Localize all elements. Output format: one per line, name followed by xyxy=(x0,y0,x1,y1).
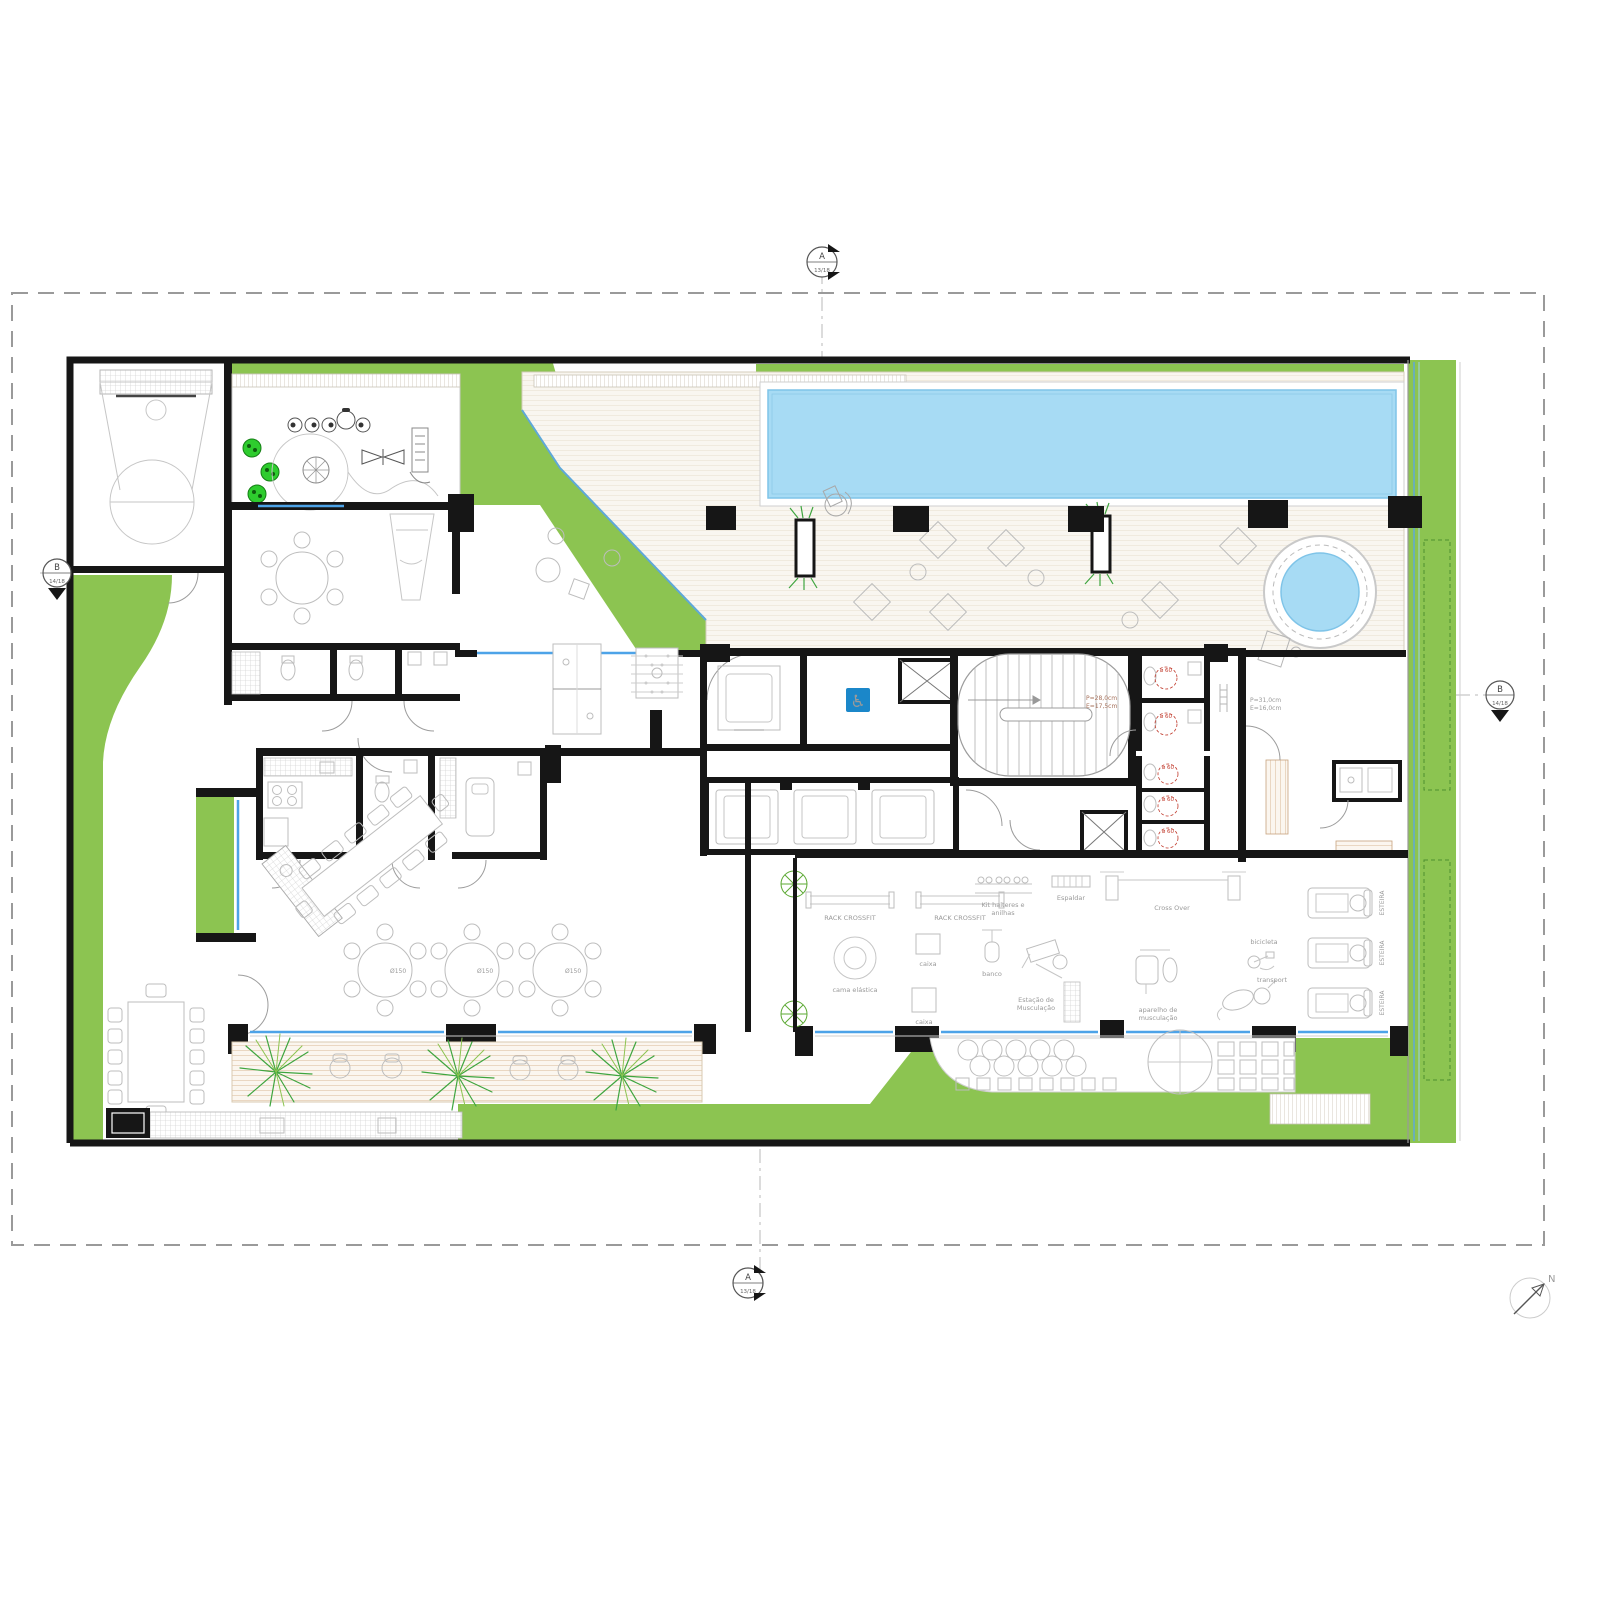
planter-wall-green xyxy=(196,795,234,940)
main-stair: P=28,0cm E=17,5cm xyxy=(950,648,1136,786)
box-label: caixa xyxy=(915,1018,932,1026)
rack-label: RACK CROSSFIT xyxy=(934,914,986,922)
dumbbells-label-1: Kit halteres e xyxy=(981,901,1024,909)
section-marker-b-right: B 14/18 xyxy=(1486,681,1514,722)
station-label-1: Estação de xyxy=(1018,996,1054,1004)
marker-letter: B xyxy=(1497,685,1503,695)
turning-circle-label: ø 60 xyxy=(1162,797,1175,803)
bbq-counter xyxy=(106,1108,462,1138)
turning-circle-label: ø 60 xyxy=(1160,714,1173,720)
stair-tread-note: P=28,0cm xyxy=(1086,695,1117,702)
section-marker-a-top: A 13/18 xyxy=(807,244,840,280)
marker-letter: B xyxy=(54,563,60,573)
cross-over-label: Cross Over xyxy=(1154,904,1190,912)
shower-room xyxy=(1334,762,1400,800)
table-size-label: Ø150 xyxy=(390,968,406,975)
marker-sheet: 13/18 xyxy=(814,268,830,274)
machine-label-1: aparelho de xyxy=(1139,1006,1178,1014)
turning-circle-label: ø 60 xyxy=(1162,829,1175,835)
floor-plan-page: ♿ P=28,0cm E=17,5cm ø 60 ø 60 xyxy=(0,0,1600,1600)
trampoline-label: cama elástica xyxy=(832,986,877,994)
marker-sheet: 14/18 xyxy=(1492,701,1508,707)
box-label: caixa xyxy=(919,960,936,968)
marker-letter: A xyxy=(745,1273,751,1283)
treadmill-label: ESTEIRA xyxy=(1379,940,1386,966)
station-label-2: Musculação xyxy=(1017,1004,1055,1012)
floor-plan-drawing: ♿ P=28,0cm E=17,5cm ø 60 ø 60 xyxy=(0,0,1600,1600)
shaft-upper xyxy=(900,660,954,702)
north-arrow: N xyxy=(1510,1274,1555,1318)
table-size-label: Ø150 xyxy=(565,968,581,975)
lawn-east-band xyxy=(1408,360,1456,1143)
machine-label-2: musculação xyxy=(1139,1014,1178,1022)
bench-label: banco xyxy=(982,970,1002,978)
marker-letter: A xyxy=(819,252,825,262)
wall-bars-label: Espaldar xyxy=(1057,894,1086,902)
court-partition-wall xyxy=(224,358,232,705)
treadmill-label: ESTEIRA xyxy=(1379,990,1386,1016)
rack-label: RACK CROSSFIT xyxy=(824,914,876,922)
turning-circle-label: ø 60 xyxy=(1160,668,1173,674)
deck-stair-riser-note: E=16,0cm xyxy=(1250,705,1281,712)
stair-riser-note: E=17,5cm xyxy=(1086,703,1117,710)
table-size-label: Ø150 xyxy=(477,968,493,975)
bike-label: bicicleta xyxy=(1250,938,1277,946)
dumbbells-label-2: anilhas xyxy=(991,909,1015,917)
elliptical-label: transport xyxy=(1257,976,1287,984)
foosball-table xyxy=(631,648,683,698)
sauna-bench-vertical xyxy=(1266,760,1288,834)
deck-stair-tread-note: P=31,0cm xyxy=(1250,697,1281,704)
north-label: N xyxy=(1548,1274,1555,1285)
planted-bench xyxy=(232,1034,702,1110)
marker-sheet: 14/18 xyxy=(49,579,65,585)
patio-deck xyxy=(1270,1094,1370,1124)
ping-pong-table xyxy=(553,644,601,734)
section-marker-a-bottom: A 13/18 xyxy=(733,1265,766,1301)
shaft-lower xyxy=(1082,812,1126,852)
treadmill-label: ESTEIRA xyxy=(1379,890,1386,916)
wheelchair-icon: ♿ xyxy=(850,692,865,712)
turning-circle-label: ø 60 xyxy=(1162,765,1175,771)
swimming-pool xyxy=(760,382,1404,506)
marker-sheet: 13/18 xyxy=(740,1289,756,1295)
